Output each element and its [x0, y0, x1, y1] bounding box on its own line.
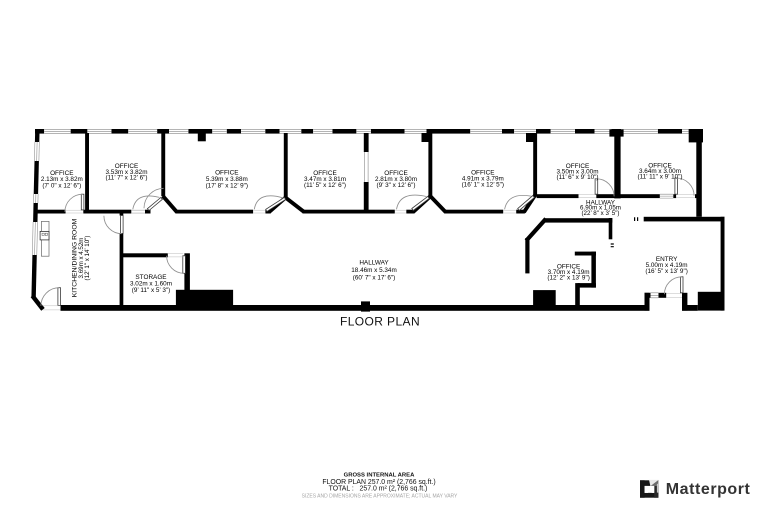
- svg-text:(16’ 1" x 12’ 5"): (16’ 1" x 12’ 5"): [462, 182, 504, 189]
- svg-text:(9’ 11" x 5’ 3"): (9’ 11" x 5’ 3"): [132, 287, 170, 294]
- svg-text:(11’ 7" x 12’ 6"): (11’ 7" x 12’ 6"): [106, 175, 148, 182]
- svg-text:FLOOR PLAN: FLOOR PLAN: [340, 315, 420, 329]
- svg-text:Matterport: Matterport: [666, 481, 751, 498]
- svg-text:HALLWAY: HALLWAY: [359, 260, 389, 267]
- svg-text:(11’ 6" x 9’ 10"): (11’ 6" x 9’ 10"): [557, 174, 599, 181]
- svg-text:(9’ 3" x 12’ 6"): (9’ 3" x 12’ 6"): [377, 182, 416, 189]
- svg-text:(17’ 8" x 12’ 9"): (17’ 8" x 12’ 9"): [206, 182, 248, 189]
- svg-text:(11’ 5" x 12’ 6"): (11’ 5" x 12’ 6"): [304, 182, 346, 189]
- svg-text:(60’ 7" x 17’ 6"): (60’ 7" x 17’ 6"): [353, 275, 395, 282]
- svg-text:GROSS INTERNAL AREA: GROSS INTERNAL AREA: [344, 473, 415, 479]
- svg-text:(11’ 11" x 9’ 10"): (11’ 11" x 9’ 10"): [637, 174, 682, 181]
- svg-text:TOTAL : 257.0 m² (2,766 sq.f: TOTAL : 257.0 m² (2,766 sq.ft.): [329, 485, 428, 492]
- svg-text:(16’ 5" x 13’ 9"): (16’ 5" x 13’ 9"): [645, 268, 687, 275]
- svg-text:(12’ 1" x 14’ 10"): (12’ 1" x 14’ 10"): [84, 236, 91, 281]
- svg-text:(12’ 2" x 13’ 9"): (12’ 2" x 13’ 9"): [547, 274, 589, 281]
- svg-text:SIZES AND DIMENSIONS ARE APPRO: SIZES AND DIMENSIONS ARE APPROXIMATE; AC…: [302, 494, 458, 500]
- svg-text:(22’ 8" x 3’ 5"): (22’ 8" x 3’ 5"): [582, 210, 620, 217]
- svg-text:(7’ 0" x 12’ 6"): (7’ 0" x 12’ 6"): [42, 182, 81, 189]
- svg-text:18.46m x 5.34m: 18.46m x 5.34m: [351, 267, 397, 274]
